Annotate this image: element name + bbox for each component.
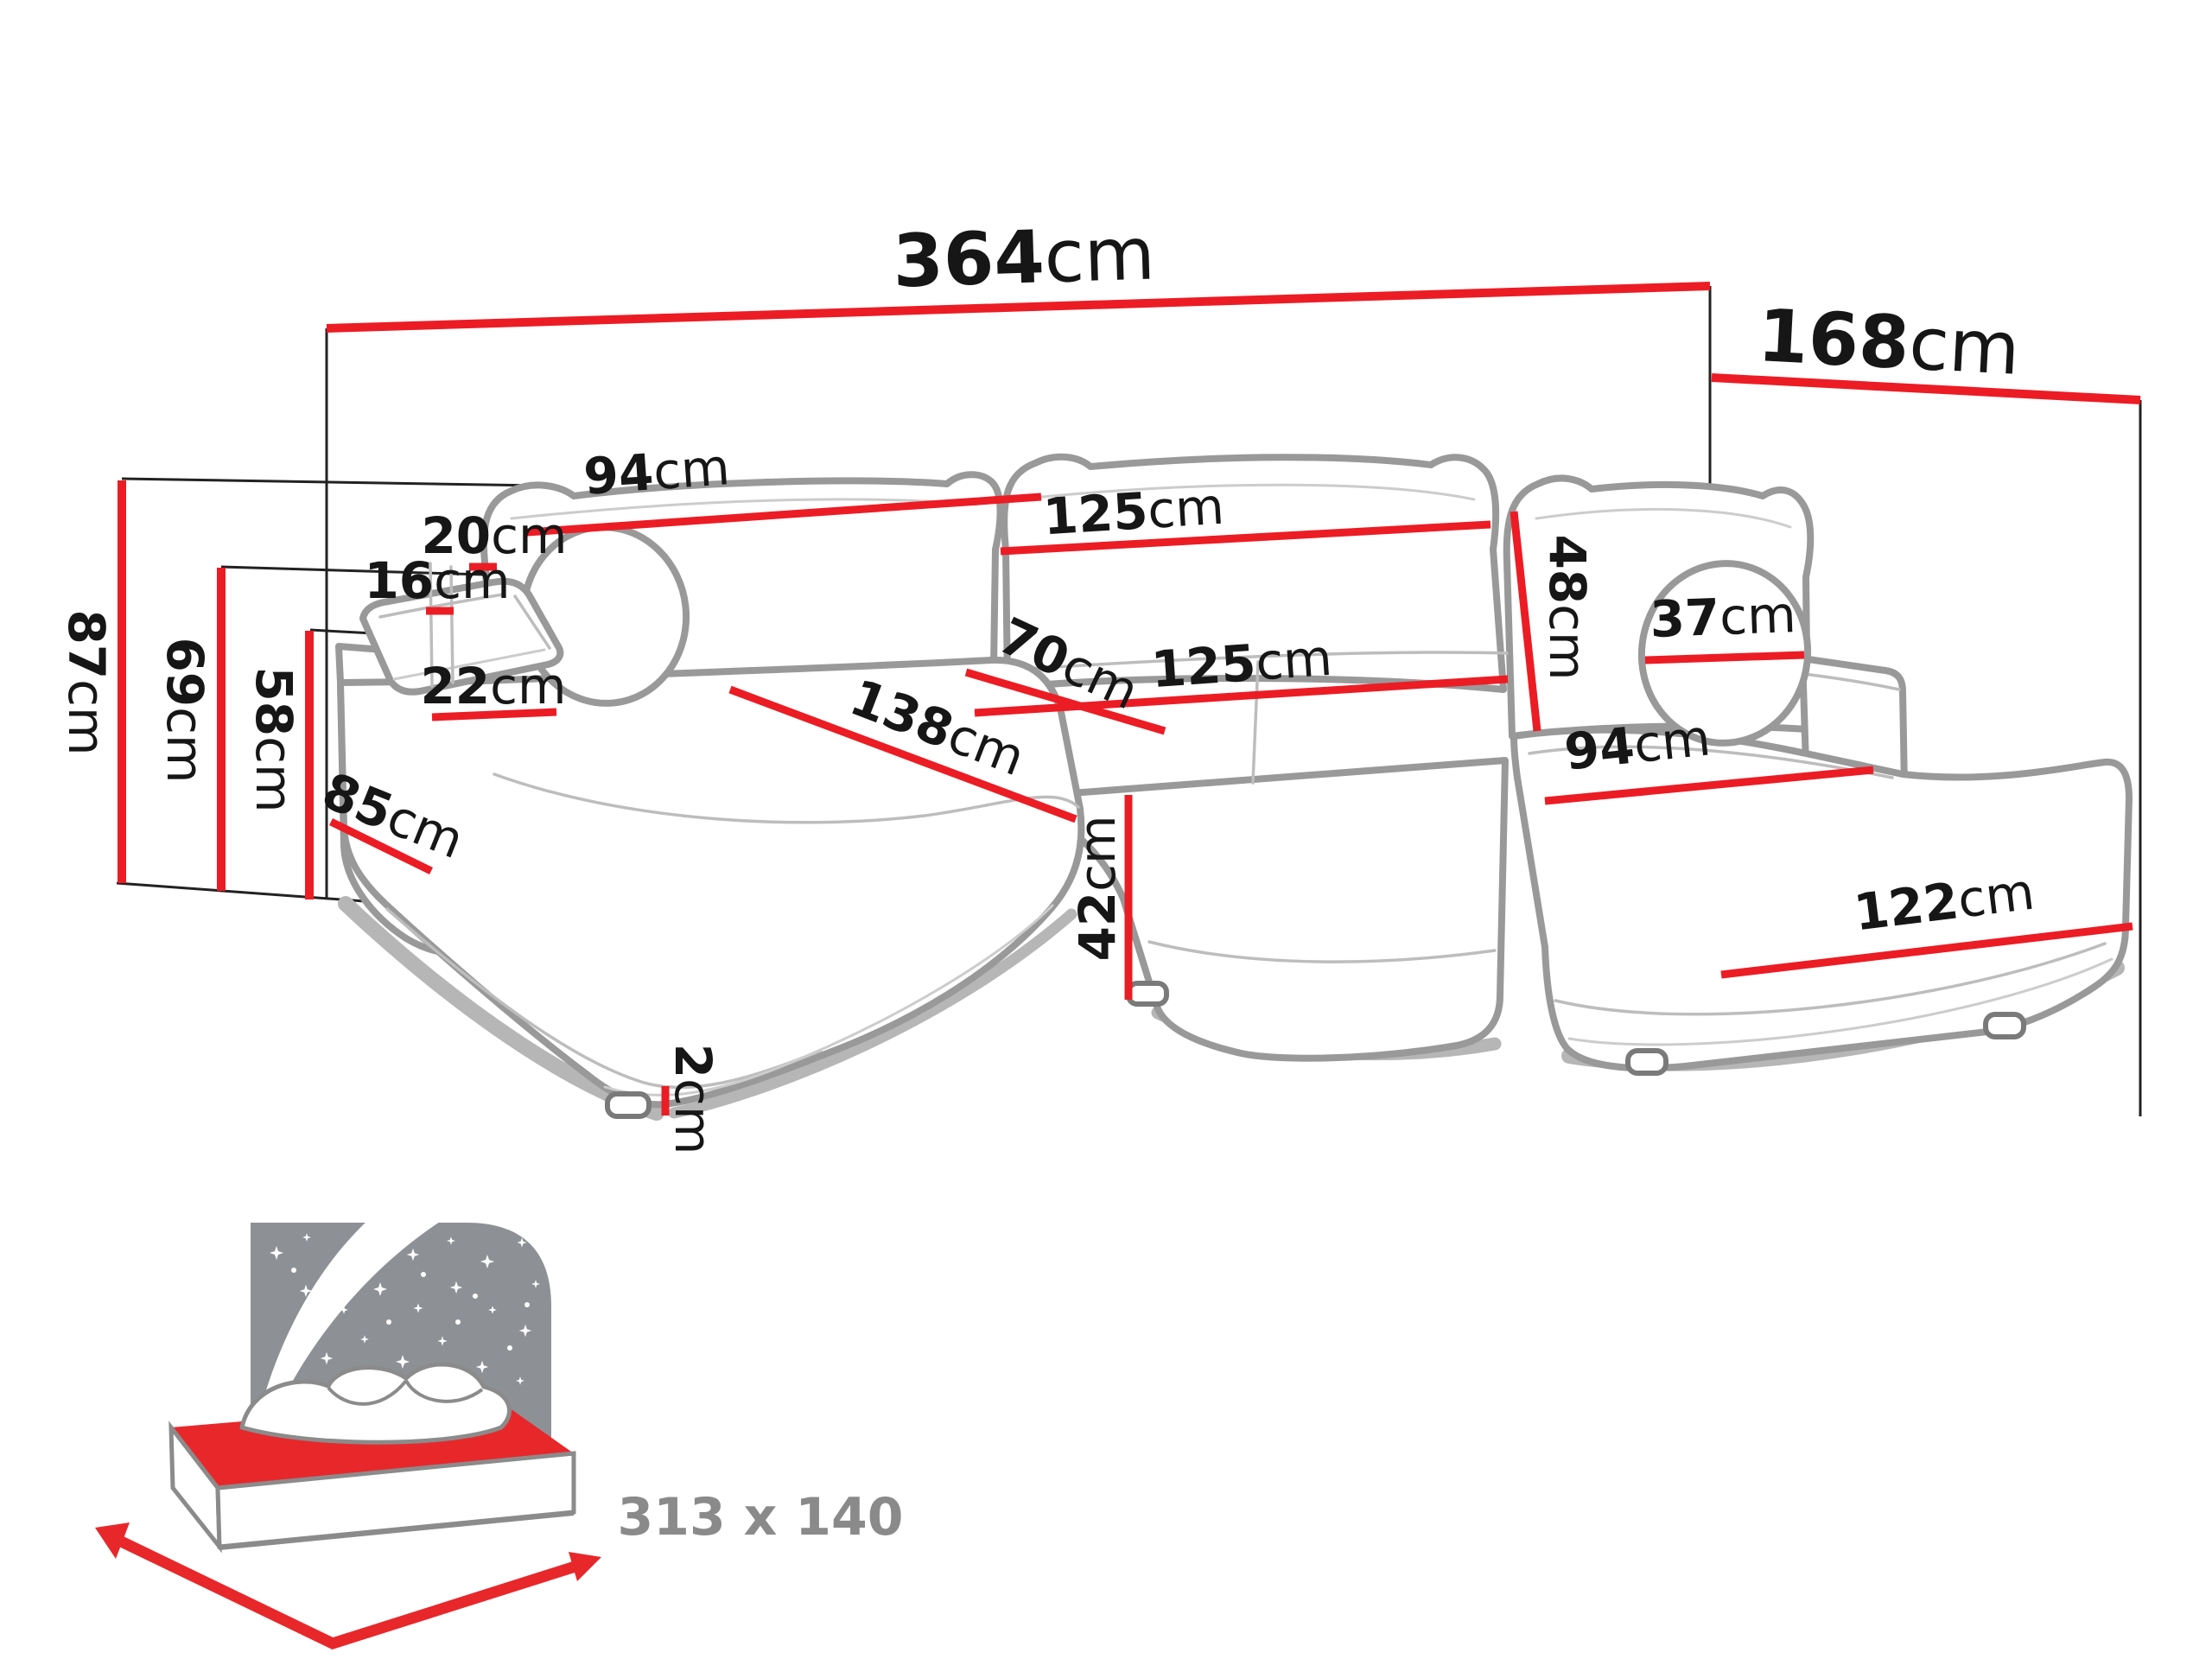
label-backrest-left-width: 94cm <box>582 437 731 506</box>
sofa-dimension-drawing: 364cm 168cm 87cm 69cm 58cm 20cm 16cm 22c… <box>0 0 2212 1659</box>
label-gap-lower: 16cm <box>364 551 510 610</box>
label-backrest-center-width: 125cm <box>1041 477 1225 547</box>
bed-size-label: 313 x 140 <box>618 1487 904 1548</box>
label-height-total: 87cm <box>57 609 116 755</box>
label-pillow-diameter: 37cm <box>1649 585 1796 649</box>
bed-icon: 313 x 140 <box>95 1220 903 1643</box>
label-backrest-right-height: 48cm <box>1538 534 1597 680</box>
bed-dimension-arrows <box>95 1522 601 1643</box>
label-seat-height: 42cm <box>1068 815 1127 961</box>
right-chaise <box>1514 730 2129 1069</box>
label-width-total: 364cm <box>892 212 1156 304</box>
label-depth-right: 168cm <box>1756 293 2022 391</box>
dim-line-pillow-diameter <box>1645 655 1804 660</box>
sofa-outline <box>339 457 2129 1116</box>
label-height-armrest: 58cm <box>245 666 303 812</box>
dimension-diagram: 364cm 168cm 87cm 69cm 58cm 20cm 16cm 22c… <box>0 0 2212 1659</box>
label-leg-height: 2cm <box>664 1044 722 1155</box>
label-armrest-width: 22cm <box>420 657 566 715</box>
label-height-backrest: 69cm <box>156 637 214 783</box>
